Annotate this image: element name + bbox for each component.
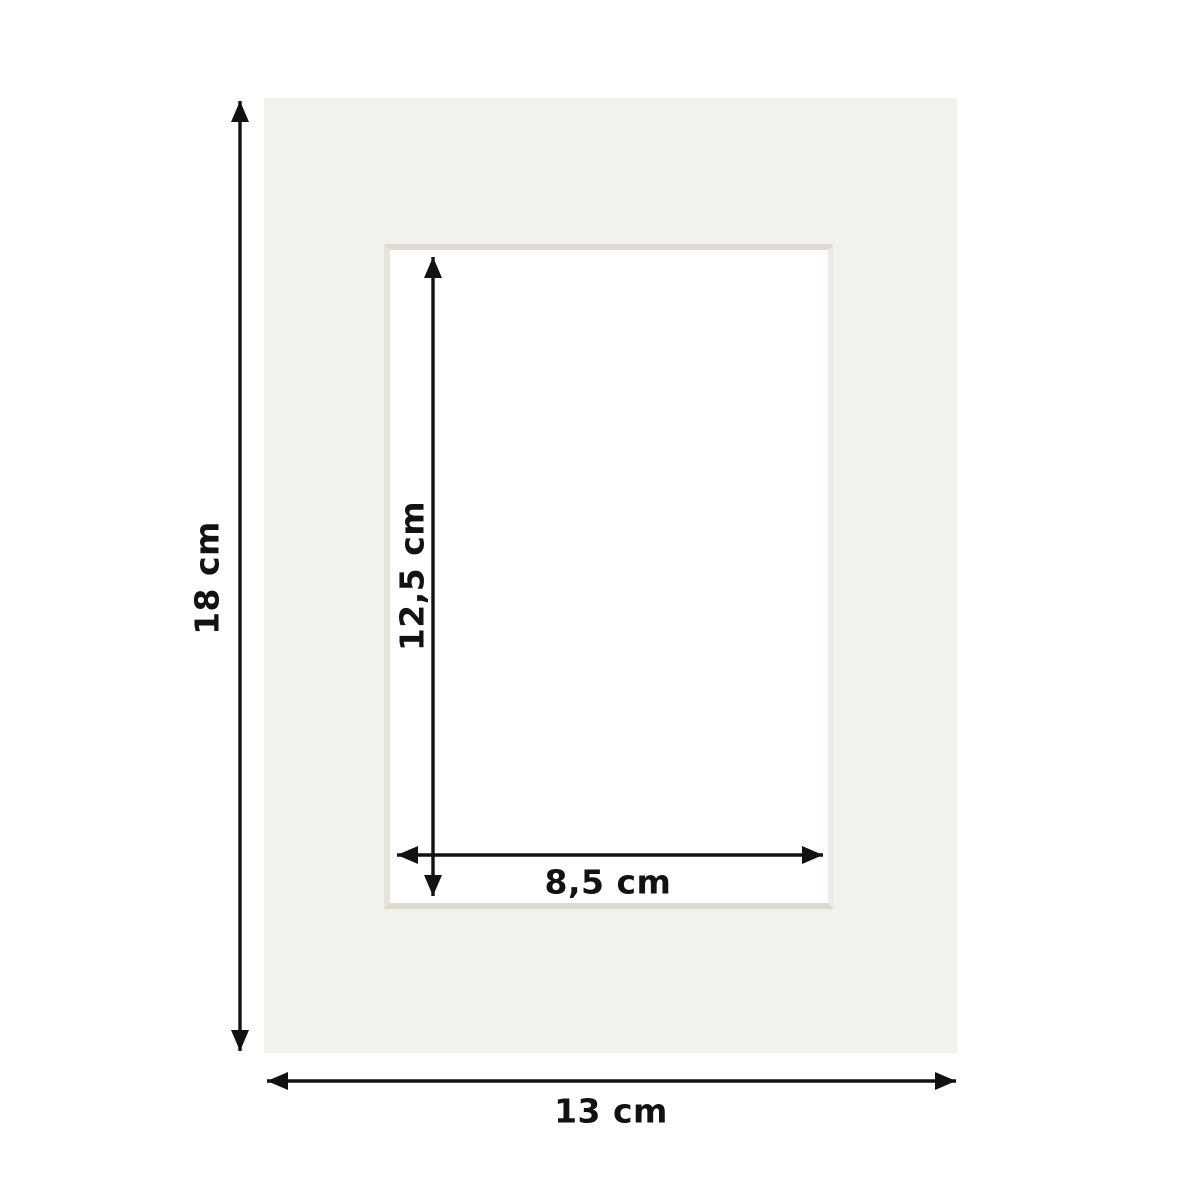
outer-width-label: 13 cm — [554, 1092, 668, 1131]
outer-height-label: 18 cm — [188, 521, 227, 635]
inner-width-label: 8,5 cm — [545, 863, 672, 902]
inner-height-label: 12,5 cm — [393, 501, 432, 651]
diagram-canvas: 18 cm 12,5 cm 8,5 cm 13 cm — [0, 0, 1200, 1200]
mat-opening — [384, 244, 834, 909]
